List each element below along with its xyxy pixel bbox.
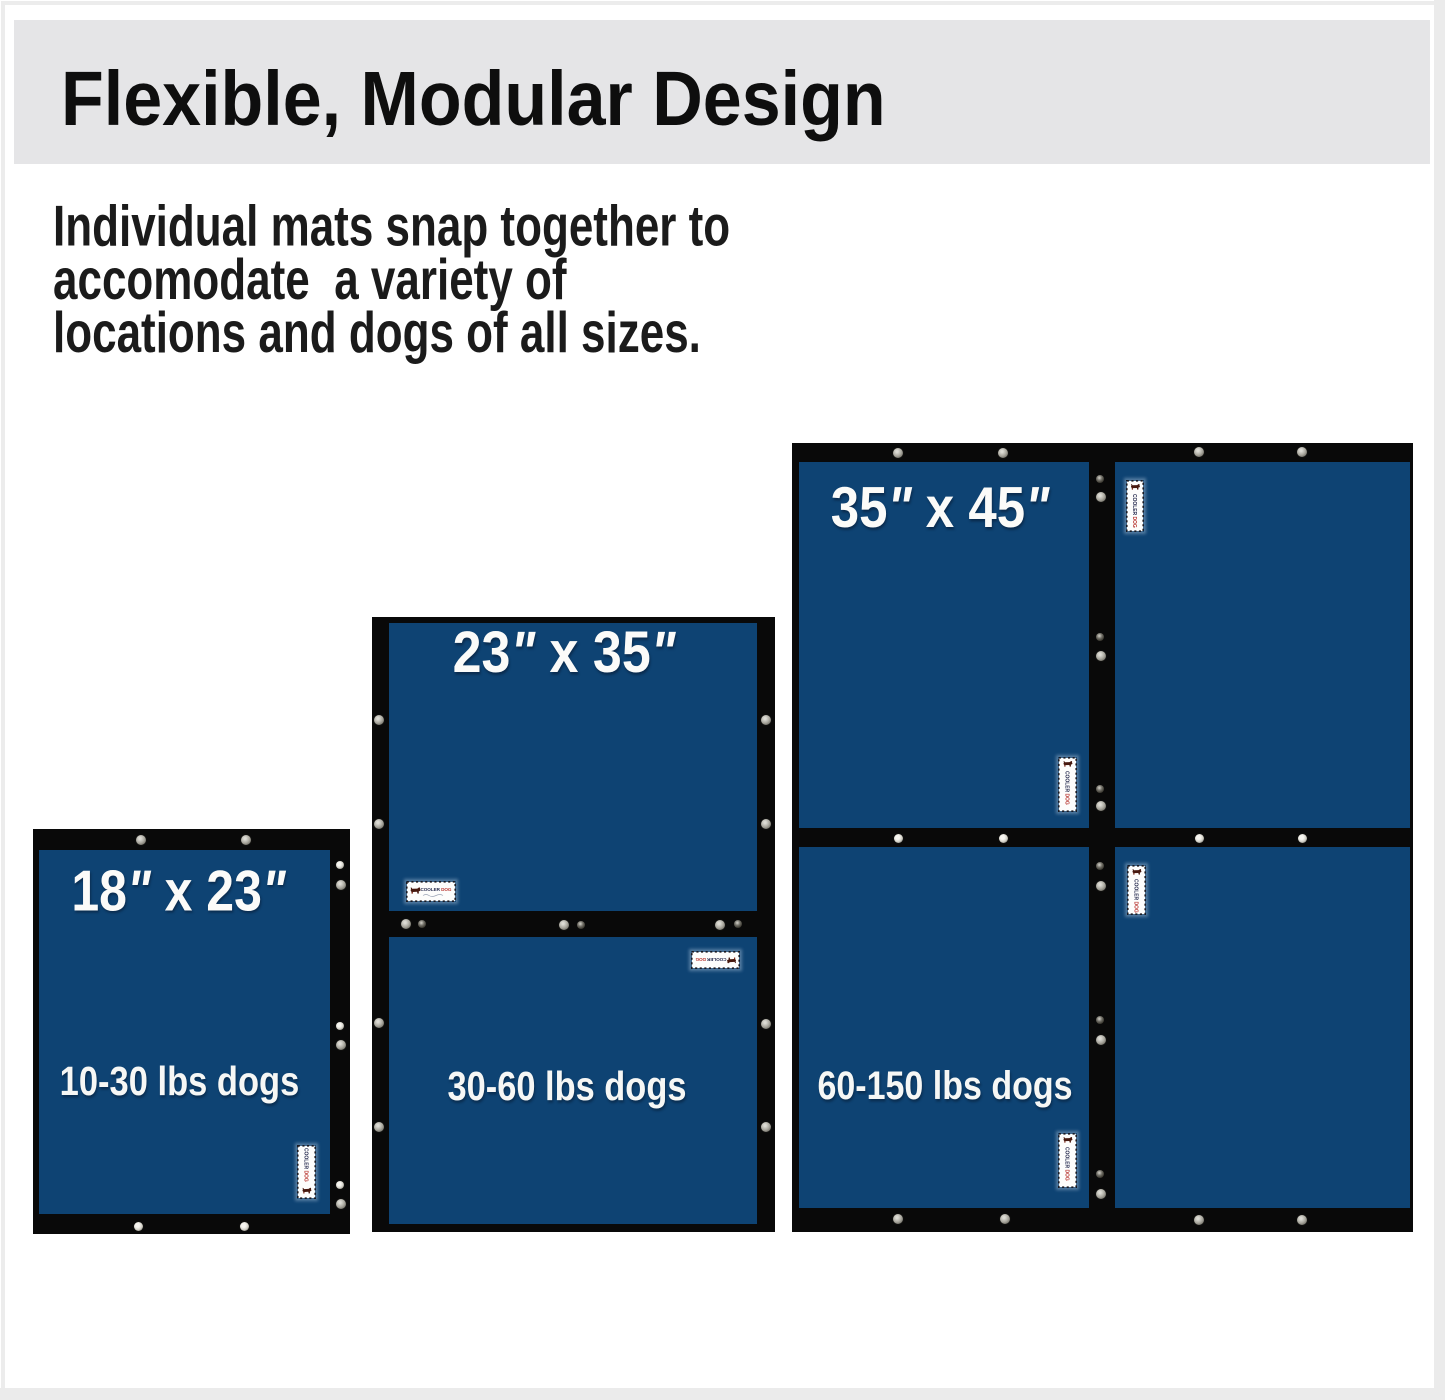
svg-text:COOLER DOG: COOLER DOG [1063, 1147, 1069, 1181]
svg-text:COOLER DOG: COOLER DOG [421, 887, 452, 892]
svg-text:COOLER DOG: COOLER DOG [1063, 771, 1069, 805]
svg-text:COOLER DOG: COOLER DOG [1132, 879, 1138, 913]
svg-text:COOLER DOG: COOLER DOG [695, 957, 726, 962]
svg-text:COOLER DOG: COOLER DOG [1131, 494, 1137, 528]
svg-text:COOLER DOG: COOLER DOG [302, 1148, 308, 1182]
